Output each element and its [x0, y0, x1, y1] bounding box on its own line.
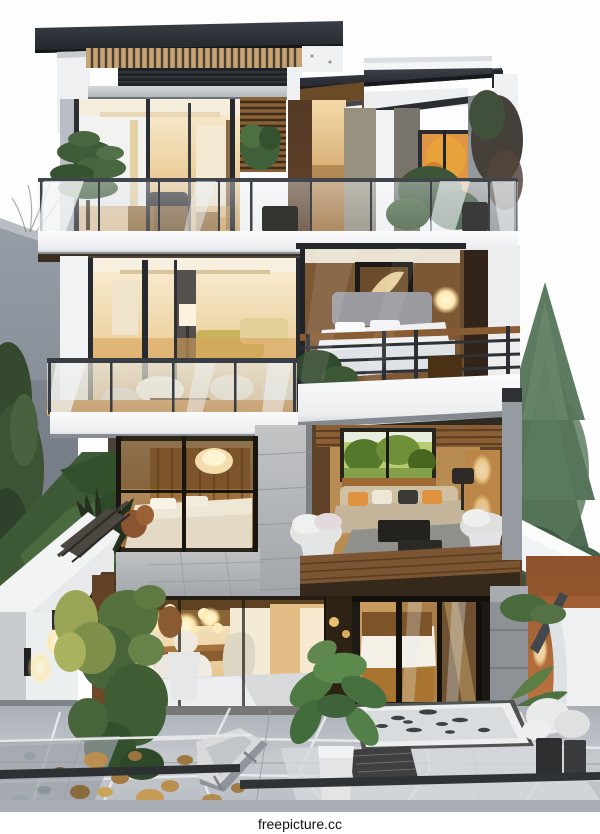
- svg-text:freepicture.cc: freepicture.cc: [258, 816, 342, 832]
